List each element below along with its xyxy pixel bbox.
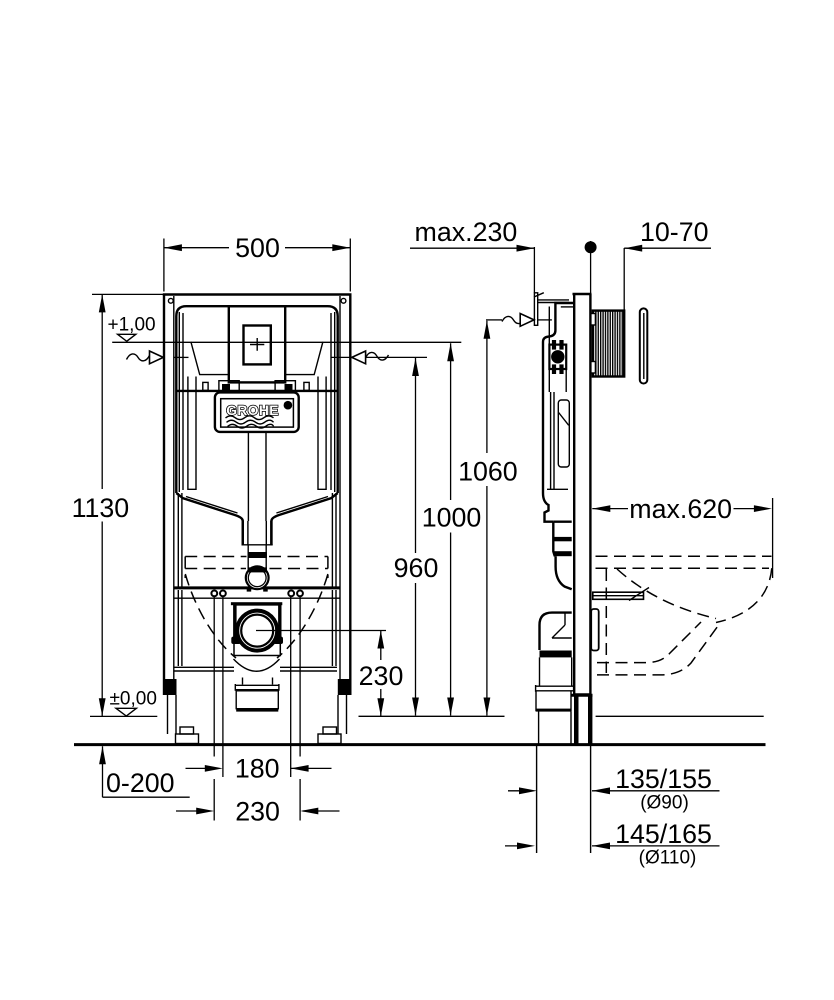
svg-text:+1,00: +1,00 — [108, 315, 156, 336]
svg-text:10-70: 10-70 — [640, 217, 709, 247]
svg-text:230: 230 — [235, 796, 280, 826]
svg-text:1000: 1000 — [422, 503, 482, 533]
svg-text:(Ø90): (Ø90) — [640, 793, 689, 814]
svg-text:180: 180 — [235, 754, 280, 784]
svg-text:±0,00: ±0,00 — [110, 688, 157, 709]
svg-text:max.230: max.230 — [415, 217, 518, 247]
svg-text:500: 500 — [235, 233, 280, 263]
svg-text:1060: 1060 — [458, 457, 518, 487]
svg-text:230: 230 — [359, 661, 404, 691]
svg-text:135/155: 135/155 — [615, 764, 712, 794]
svg-text:max.620: max.620 — [629, 494, 732, 524]
svg-text:1130: 1130 — [72, 493, 130, 523]
svg-text:145/165: 145/165 — [615, 819, 712, 849]
svg-text:0-200: 0-200 — [106, 768, 175, 798]
svg-text:(Ø110): (Ø110) — [639, 848, 697, 869]
svg-text:960: 960 — [394, 553, 439, 583]
